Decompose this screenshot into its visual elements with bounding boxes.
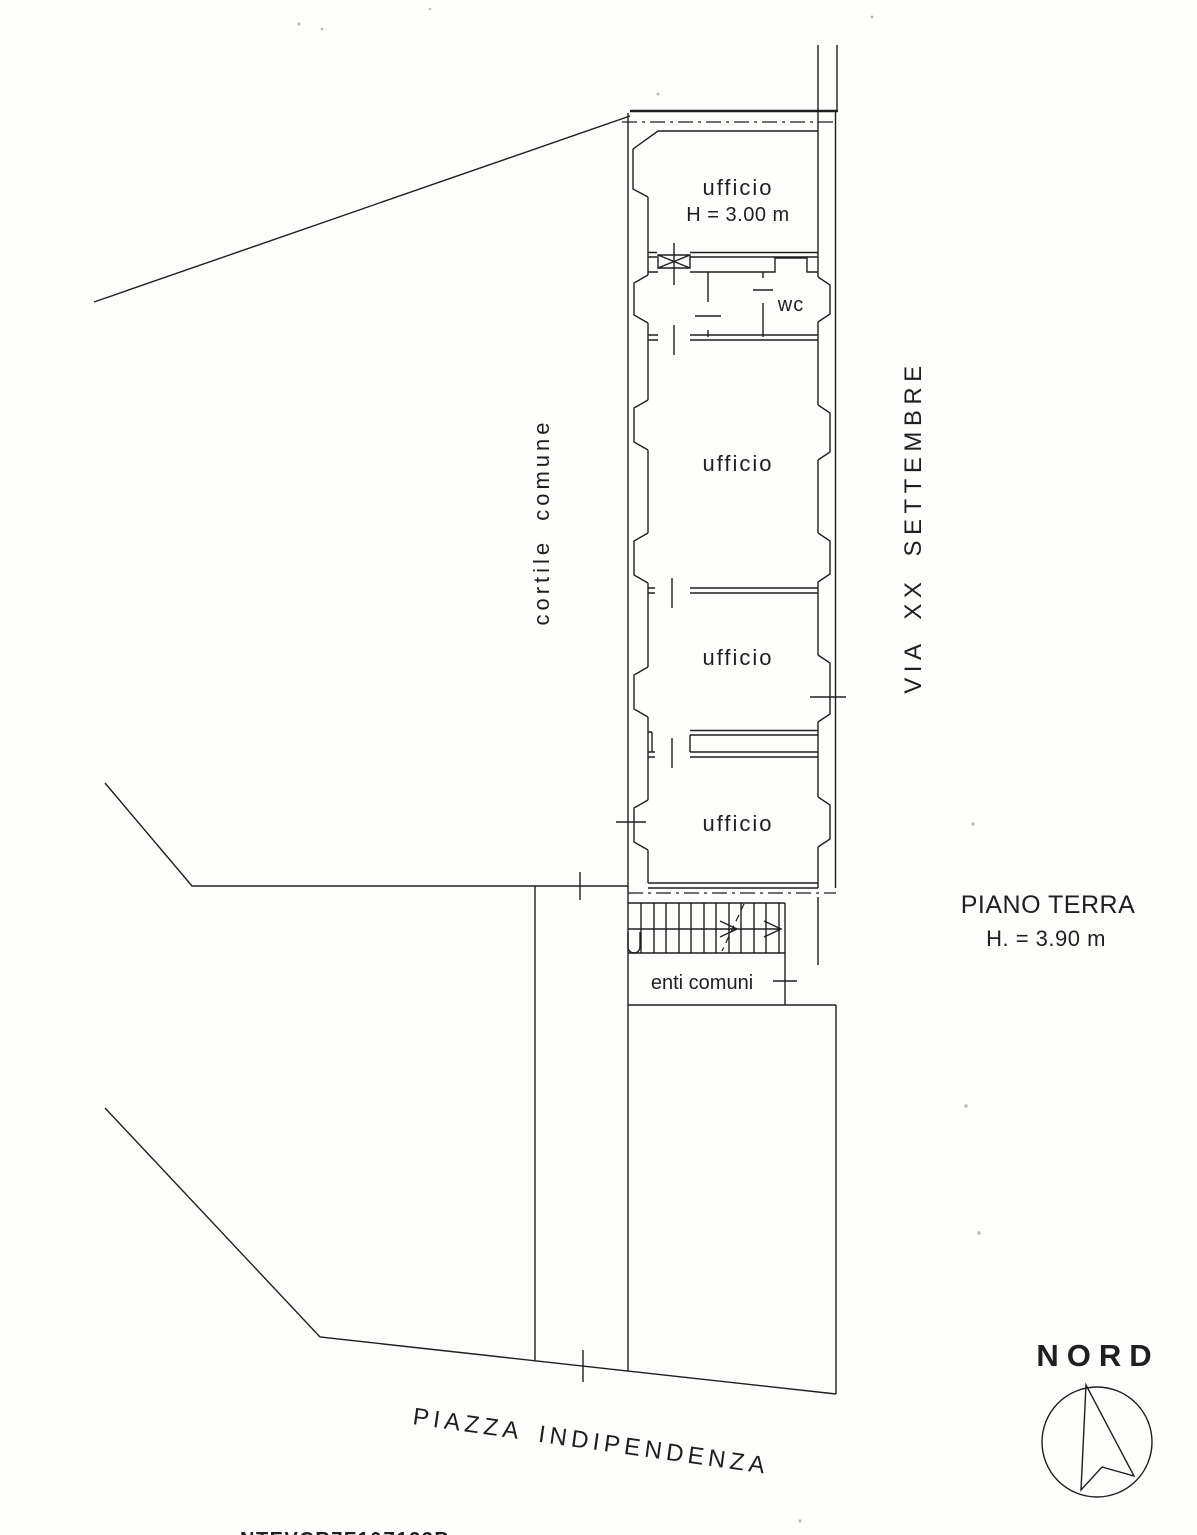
plan-labels: ufficio H = 3.00 m wc ufficio ufficio uf… bbox=[240, 175, 1160, 1535]
common-area-label: enti comuni bbox=[651, 972, 753, 994]
floor-title: PIANO TERRA bbox=[961, 891, 1136, 919]
room3-label: ufficio bbox=[702, 645, 773, 670]
courtyard-label: cortile comune bbox=[529, 418, 554, 625]
courtyard-boundary-left bbox=[105, 783, 628, 886]
right-wall-windows bbox=[818, 277, 830, 847]
compass-needle-icon bbox=[1081, 1385, 1134, 1490]
room2-label: ufficio bbox=[702, 451, 773, 476]
building-shell bbox=[622, 45, 838, 1371]
courtyard-boundary-top-diagonal bbox=[94, 116, 630, 302]
room1-height-label: H = 3.00 m bbox=[686, 204, 789, 226]
lower-building-block bbox=[628, 1005, 836, 1394]
floor-plan-drawing: ufficio H = 3.00 m wc ufficio ufficio uf… bbox=[0, 0, 1197, 1535]
square-label: PIAZZA INDIPENDENZA bbox=[411, 1403, 771, 1480]
room4-label: ufficio bbox=[702, 811, 773, 836]
street-label: VIA XX SETTEMBRE bbox=[900, 360, 927, 693]
scan-noise bbox=[297, 8, 980, 1523]
stair-treads bbox=[641, 903, 779, 953]
stair-start-curve bbox=[628, 932, 640, 953]
compass-circle-icon bbox=[1042, 1387, 1152, 1497]
site-boundary-lines bbox=[94, 116, 836, 1394]
north-compass bbox=[1042, 1385, 1152, 1497]
room1-label: ufficio bbox=[702, 175, 773, 200]
left-wall-windows bbox=[633, 149, 648, 850]
room1-corner-chamfer bbox=[633, 131, 658, 149]
lower-block-outline bbox=[628, 1005, 836, 1394]
scanned-floor-plan-page: ufficio H = 3.00 m wc ufficio ufficio uf… bbox=[0, 0, 1197, 1535]
street-wall-extension bbox=[818, 45, 837, 111]
wc-label: wc bbox=[777, 294, 804, 316]
floor-height: H. = 3.90 m bbox=[986, 926, 1106, 951]
bottom-cutoff-text: NTEVCR7F10Z122B bbox=[240, 1529, 450, 1535]
piazza-boundary-line bbox=[105, 1108, 836, 1394]
compass-label: NORD bbox=[1036, 1338, 1159, 1373]
window-symbols bbox=[616, 149, 846, 850]
door-opening-ticks bbox=[672, 243, 773, 768]
interior-walls bbox=[648, 243, 818, 888]
